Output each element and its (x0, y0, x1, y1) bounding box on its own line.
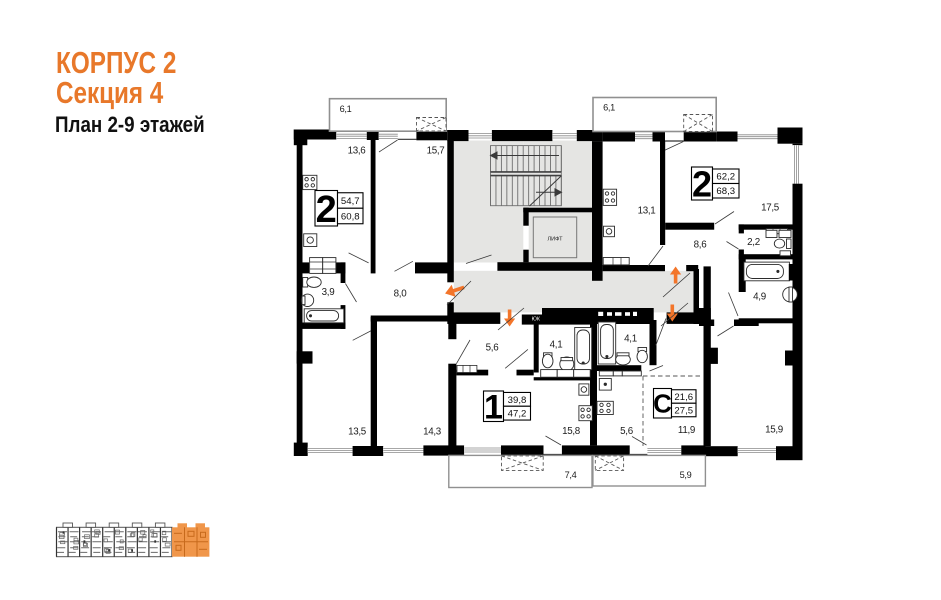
svg-text:13,5: 13,5 (348, 427, 367, 438)
svg-text:13,1: 13,1 (638, 206, 656, 217)
svg-text:5,6: 5,6 (620, 426, 634, 437)
svg-text:ЮК: ЮК (532, 317, 540, 323)
svg-text:15,9: 15,9 (765, 425, 783, 436)
svg-text:4,1: 4,1 (624, 334, 637, 345)
svg-text:8,0: 8,0 (394, 289, 408, 300)
svg-text:6,1: 6,1 (603, 103, 615, 113)
svg-text:ЛИФТ: ЛИФТ (547, 237, 563, 243)
svg-text:39,8: 39,8 (508, 395, 527, 406)
svg-text:5,6: 5,6 (486, 343, 500, 354)
svg-text:17,5: 17,5 (761, 203, 780, 214)
svg-text:47,2: 47,2 (508, 409, 527, 420)
svg-text:6,1: 6,1 (340, 104, 352, 114)
svg-text:68,3: 68,3 (716, 186, 735, 197)
svg-text:15,8: 15,8 (562, 426, 581, 437)
svg-text:2,2: 2,2 (747, 237, 760, 248)
svg-text:С: С (653, 389, 672, 419)
svg-text:15,7: 15,7 (427, 146, 445, 157)
svg-text:21,6: 21,6 (674, 392, 693, 403)
svg-text:4,9: 4,9 (753, 292, 766, 303)
svg-text:14,3: 14,3 (423, 427, 442, 438)
svg-text:2: 2 (692, 163, 712, 204)
svg-text:7,4: 7,4 (565, 470, 577, 480)
svg-text:11,9: 11,9 (678, 425, 695, 436)
svg-text:4,1: 4,1 (550, 340, 563, 351)
svg-text:5,9: 5,9 (680, 470, 692, 480)
svg-text:3,9: 3,9 (322, 287, 335, 298)
svg-text:54,7: 54,7 (341, 196, 360, 207)
svg-text:62,2: 62,2 (716, 172, 735, 183)
svg-text:1: 1 (484, 388, 503, 426)
svg-text:27,5: 27,5 (674, 405, 693, 416)
svg-text:8,6: 8,6 (694, 240, 708, 251)
svg-text:60,8: 60,8 (341, 211, 360, 222)
svg-text:2: 2 (316, 189, 337, 231)
svg-text:13,6: 13,6 (348, 146, 367, 157)
